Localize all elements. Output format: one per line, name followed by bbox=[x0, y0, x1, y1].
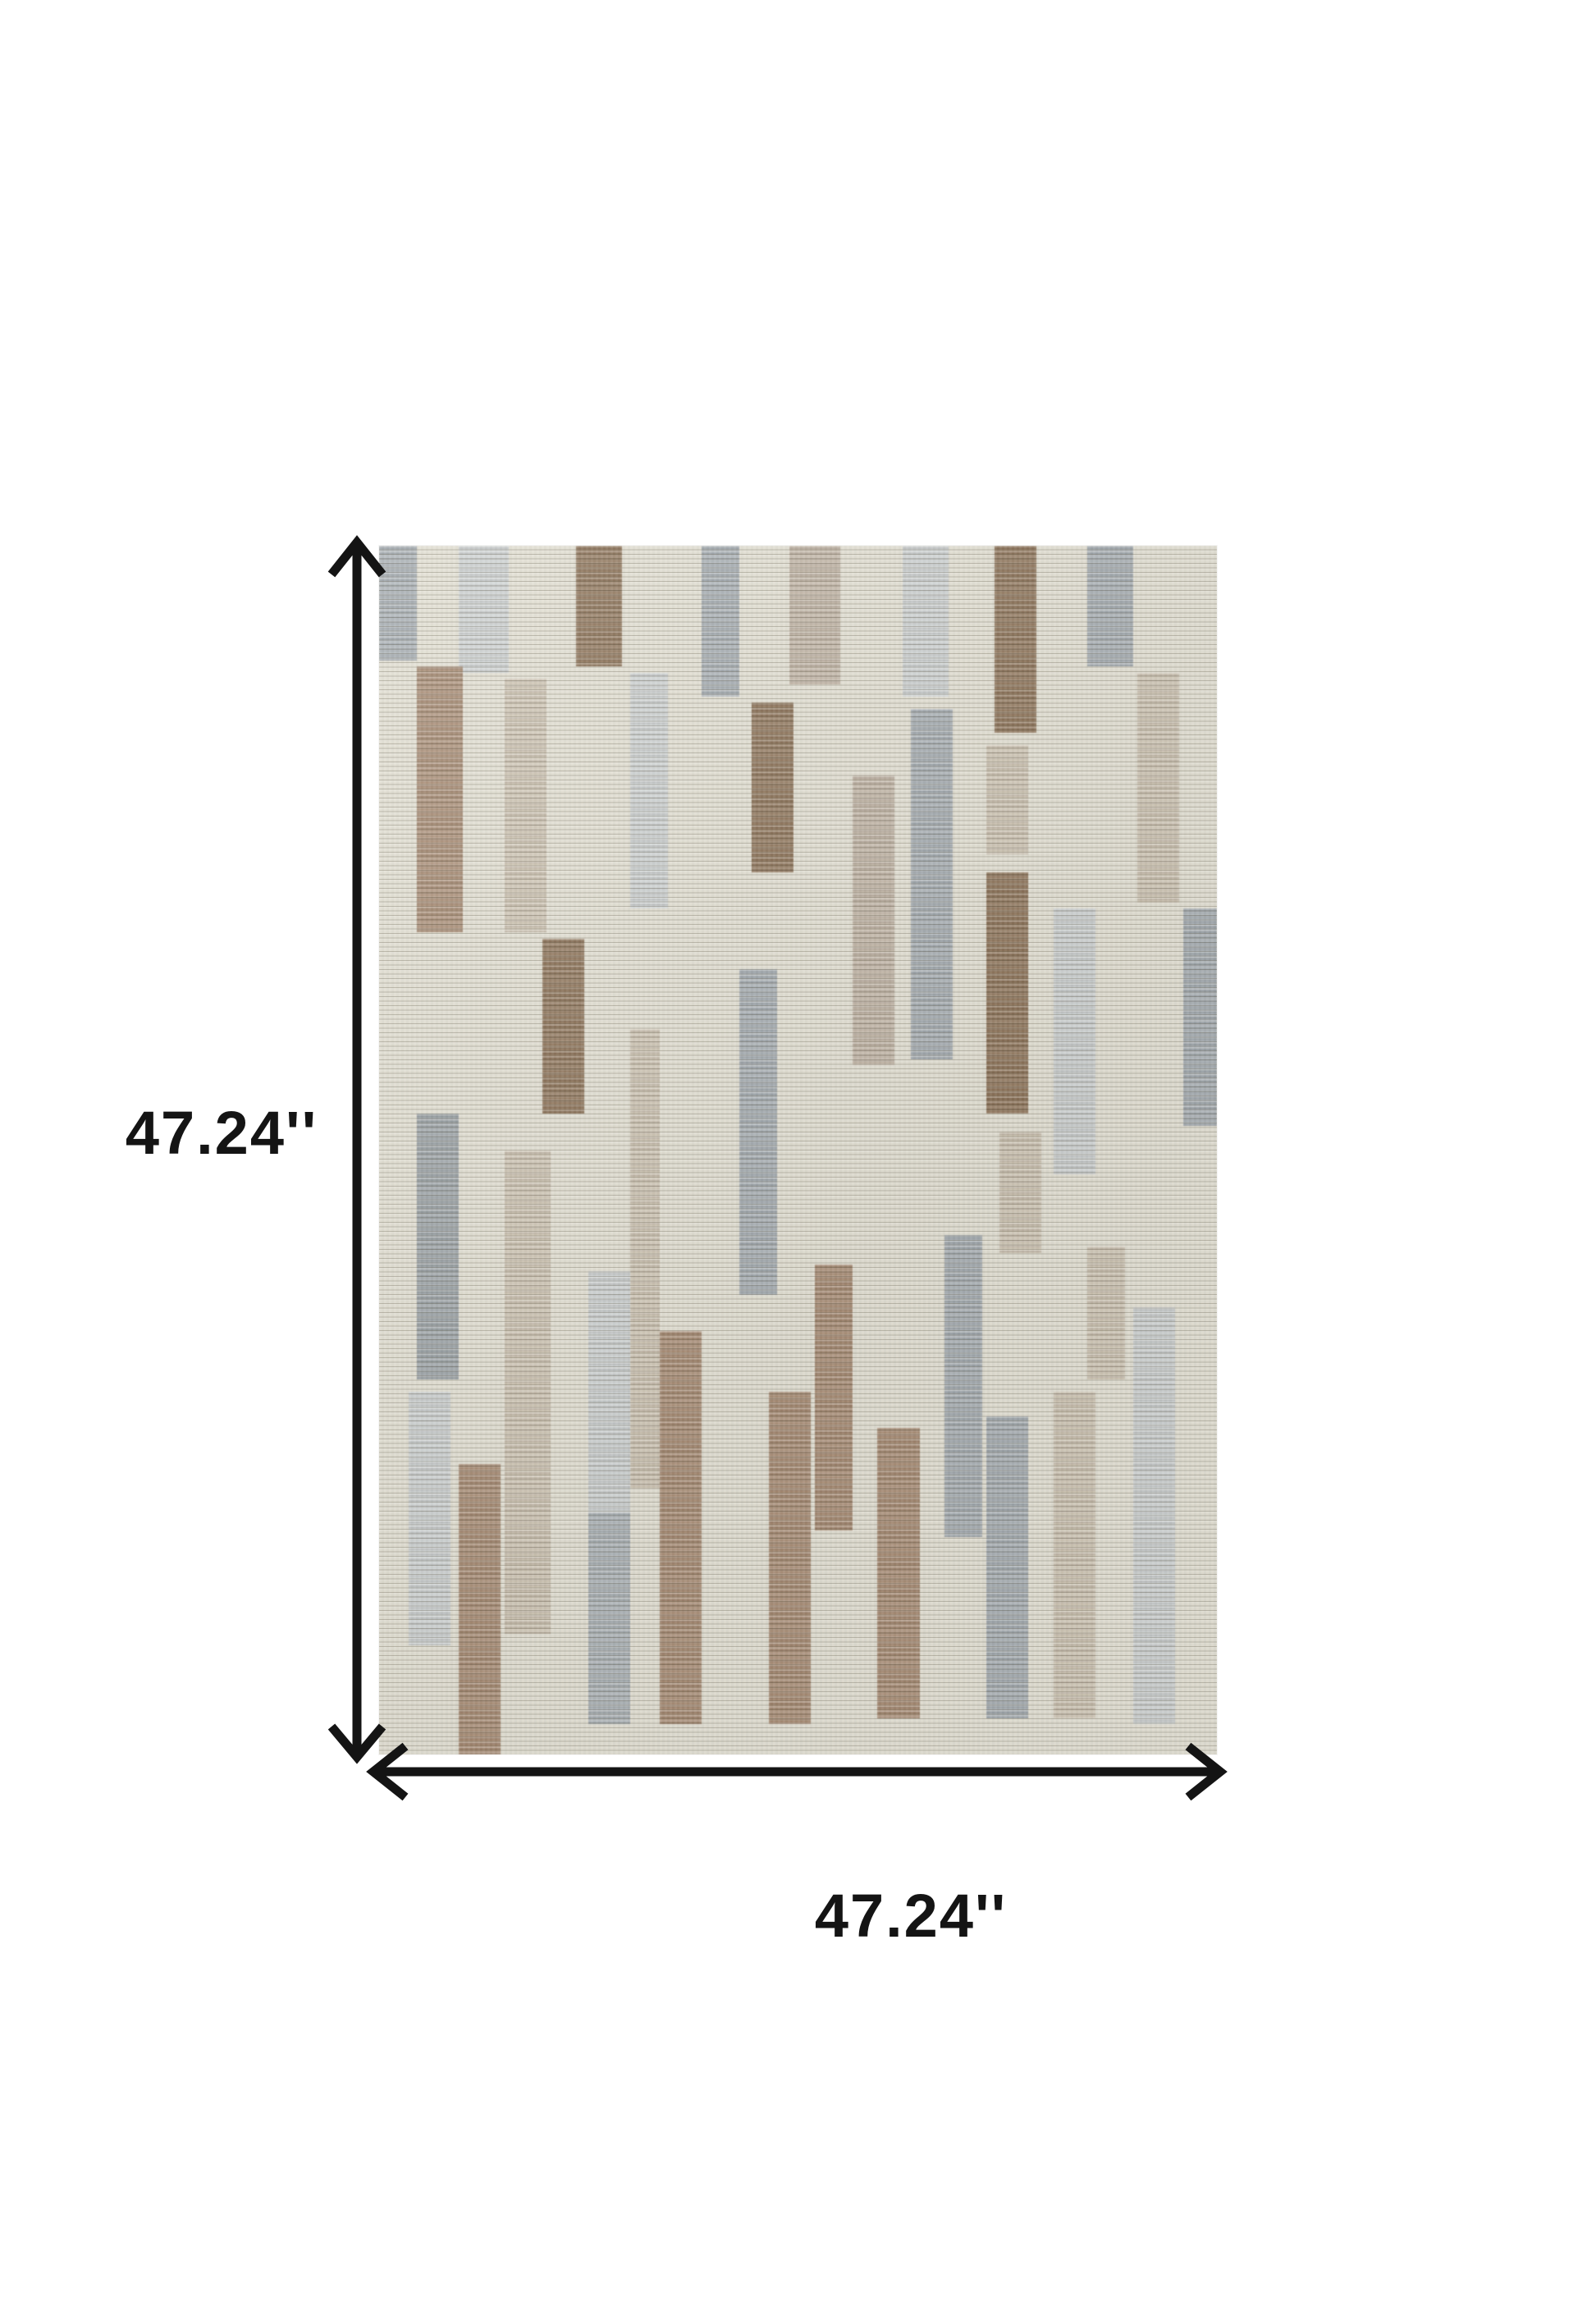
horizontal-dimension-arrow bbox=[373, 1746, 1220, 1797]
vertical-dimension-arrow bbox=[332, 542, 382, 1757]
rug-width-label: 47.24'' bbox=[808, 1881, 1013, 1951]
product-dimension-image: 47.24'' 47.24'' bbox=[0, 0, 1596, 2301]
rug-height-label: 47.24'' bbox=[119, 1098, 324, 1168]
